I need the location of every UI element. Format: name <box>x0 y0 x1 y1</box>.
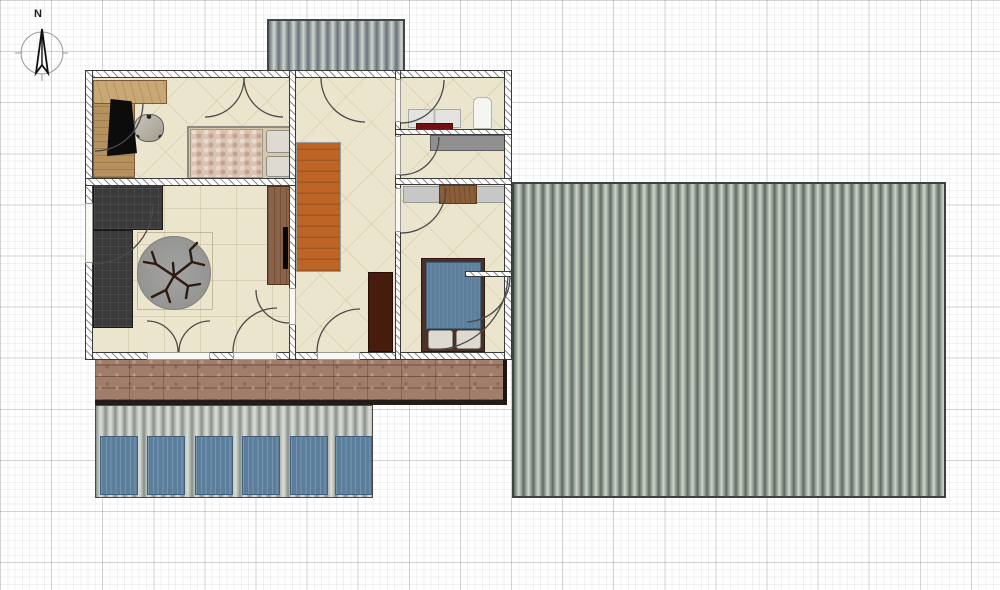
door-opening-living-hall <box>289 288 296 325</box>
wall-closet-stub <box>465 271 512 277</box>
bed-pillow <box>266 156 291 177</box>
door-opening-living-west <box>85 203 93 263</box>
deck-boards <box>95 358 507 405</box>
utility-counter <box>430 135 507 151</box>
office-chair <box>134 114 164 142</box>
main-roof-corrugated <box>512 182 946 498</box>
tv-screen <box>283 227 288 269</box>
carport-panel <box>147 436 185 495</box>
bed-pillow <box>266 130 291 153</box>
carport-panel <box>242 436 280 495</box>
carport-panel <box>335 436 372 495</box>
staircase <box>296 142 341 272</box>
door-opening-bathroom <box>395 79 401 122</box>
floor-plan-canvas <box>0 0 1000 590</box>
carport-panel <box>195 436 233 495</box>
wall-bathroom <box>395 129 512 135</box>
door-opening-bedroom2 <box>395 188 401 232</box>
wall-bedroom-living <box>85 178 296 186</box>
sofa-chaise <box>93 182 163 230</box>
bedroom2-desk <box>439 185 477 204</box>
wall-north <box>85 70 512 78</box>
desk-top <box>93 80 167 104</box>
bed-pillow <box>428 330 453 349</box>
sofa-main <box>93 230 133 328</box>
door-opening-utility <box>395 136 401 175</box>
carport-panel <box>100 436 138 495</box>
door-opening-french <box>147 352 210 360</box>
door-opening-entry <box>317 352 360 360</box>
bed-pillow <box>456 330 481 349</box>
wall-east <box>504 70 512 360</box>
door-opening-living-south <box>233 352 277 360</box>
shower-cabinet <box>473 97 492 129</box>
compass-rose: N <box>14 8 68 82</box>
bed-double-duvet <box>190 129 263 178</box>
round-rug <box>137 236 211 310</box>
porch-roof-corrugated <box>267 19 405 73</box>
north-arrow-icon <box>14 17 68 81</box>
wall-utility <box>395 178 512 185</box>
carport-panel <box>290 436 328 495</box>
wardrobe <box>368 272 393 352</box>
